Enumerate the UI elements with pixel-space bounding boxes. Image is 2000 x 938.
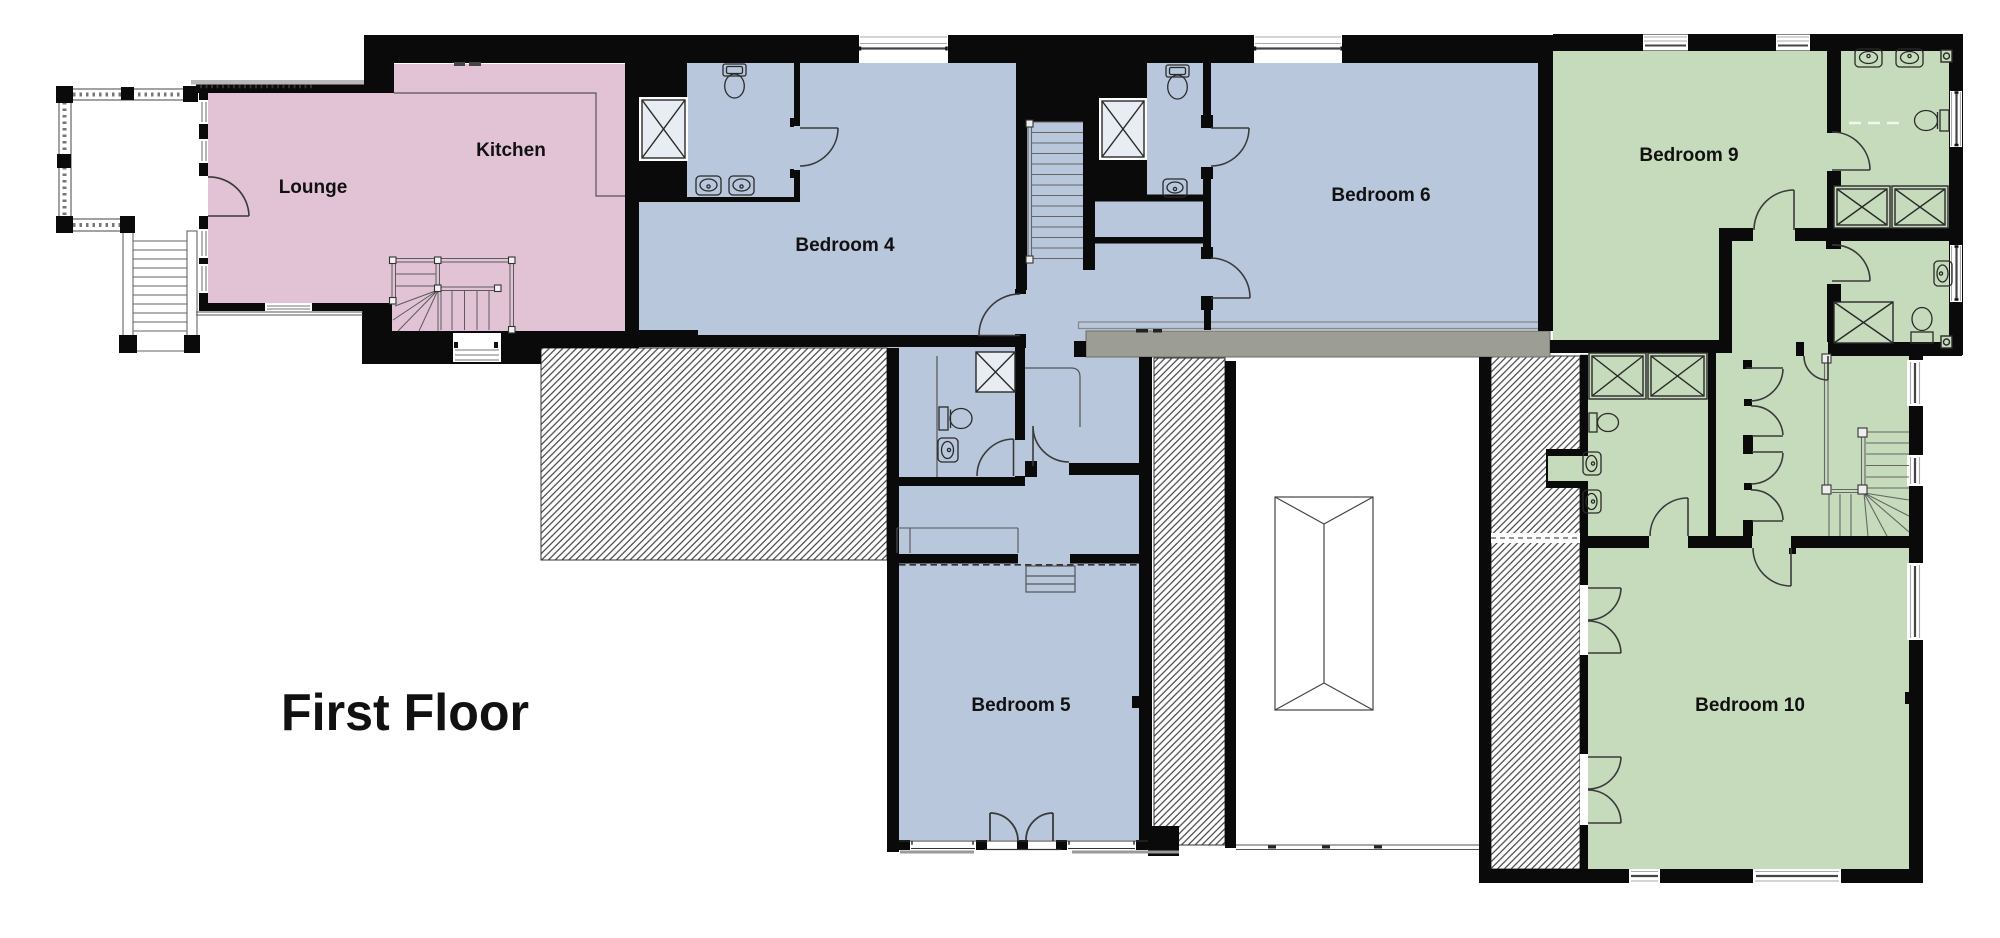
- svg-text:Lounge: Lounge: [279, 177, 348, 198]
- svg-text:First Floor: First Floor: [281, 684, 529, 742]
- svg-text:Bedroom 5: Bedroom 5: [971, 695, 1071, 716]
- svg-text:Bedroom 9: Bedroom 9: [1639, 145, 1738, 166]
- svg-text:Kitchen: Kitchen: [476, 140, 546, 161]
- svg-text:Bedroom 10: Bedroom 10: [1695, 695, 1805, 716]
- svg-text:Bedroom 6: Bedroom 6: [1331, 185, 1430, 206]
- svg-text:Bedroom 4: Bedroom 4: [795, 235, 895, 256]
